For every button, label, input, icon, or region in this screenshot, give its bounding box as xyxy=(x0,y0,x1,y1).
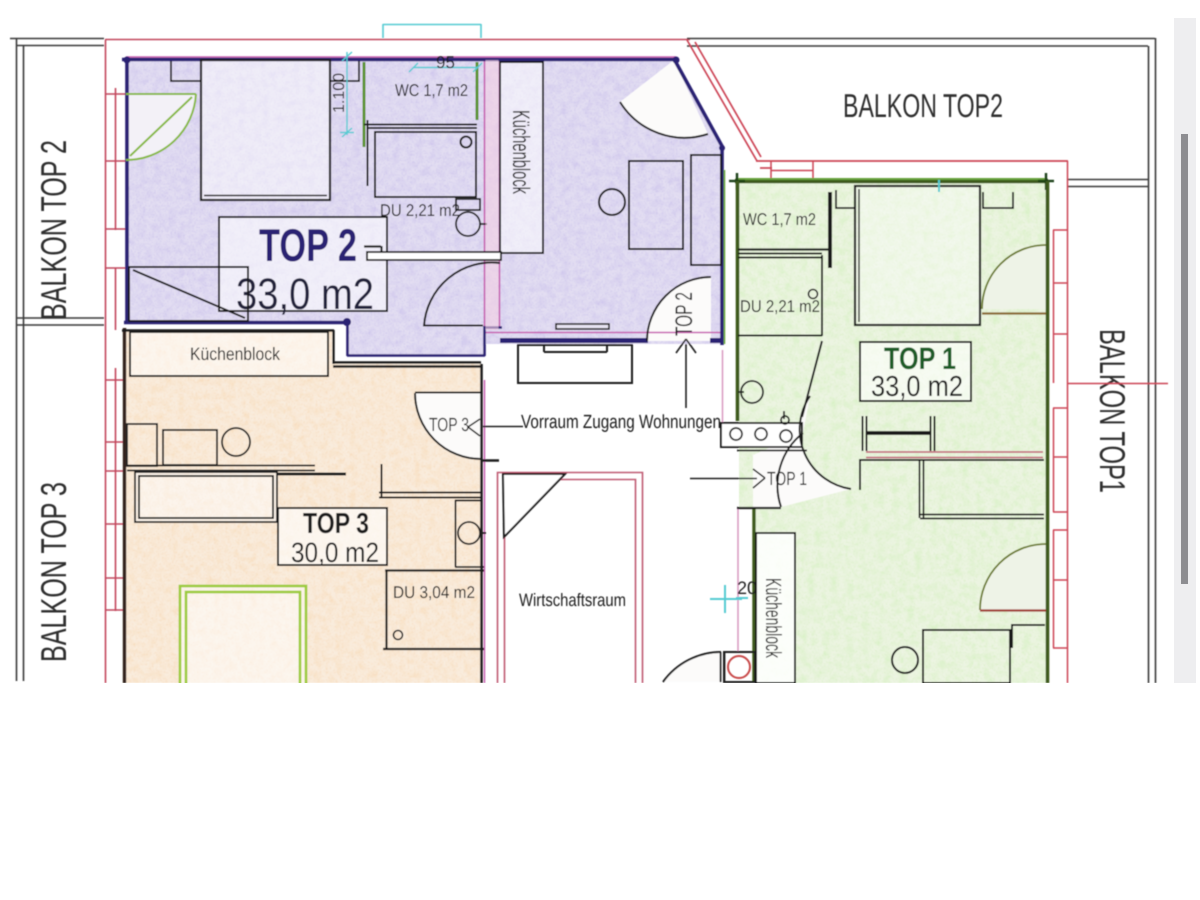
svg-text:TOP 1: TOP 1 xyxy=(767,469,807,490)
svg-text:95: 95 xyxy=(436,53,455,72)
svg-text:33,0 m2: 33,0 m2 xyxy=(871,371,963,403)
svg-text:BALKON TOP1: BALKON TOP1 xyxy=(1092,329,1133,493)
svg-text:BALKON TOP 3: BALKON TOP 3 xyxy=(33,482,74,662)
svg-text:WC 1,7 m2: WC 1,7 m2 xyxy=(395,81,468,100)
svg-text:20: 20 xyxy=(737,578,757,598)
svg-text:33,0 m2: 33,0 m2 xyxy=(236,270,374,319)
svg-text:TOP 3: TOP 3 xyxy=(303,508,369,540)
svg-text:Vorraum Zugang Wohnungen: Vorraum Zugang Wohnungen xyxy=(521,412,721,433)
svg-text:Wirtschaftsraum: Wirtschaftsraum xyxy=(519,590,626,610)
svg-text:DU 2,21 m2: DU 2,21 m2 xyxy=(740,297,820,316)
svg-text:TOP 2: TOP 2 xyxy=(671,292,698,336)
svg-text:TOP 3: TOP 3 xyxy=(429,415,469,436)
svg-text:TOP 2: TOP 2 xyxy=(259,219,357,271)
svg-text:30,0 m2: 30,0 m2 xyxy=(291,537,379,568)
svg-text:Küchenblock: Küchenblock xyxy=(190,344,281,364)
svg-text:Küchenblock: Küchenblock xyxy=(507,110,534,195)
svg-text:1.100: 1.100 xyxy=(331,73,348,113)
svg-text:DU 2,21 m2: DU 2,21 m2 xyxy=(380,201,460,220)
svg-text:WC 1,7 m2: WC 1,7 m2 xyxy=(743,210,816,229)
svg-text:BALKON TOP2: BALKON TOP2 xyxy=(843,87,1003,124)
svg-text:BALKON TOP 2: BALKON TOP 2 xyxy=(33,140,74,320)
svg-text:Küchenblock: Küchenblock xyxy=(761,578,786,659)
svg-text:DU 3,04 m2: DU 3,04 m2 xyxy=(393,583,475,602)
